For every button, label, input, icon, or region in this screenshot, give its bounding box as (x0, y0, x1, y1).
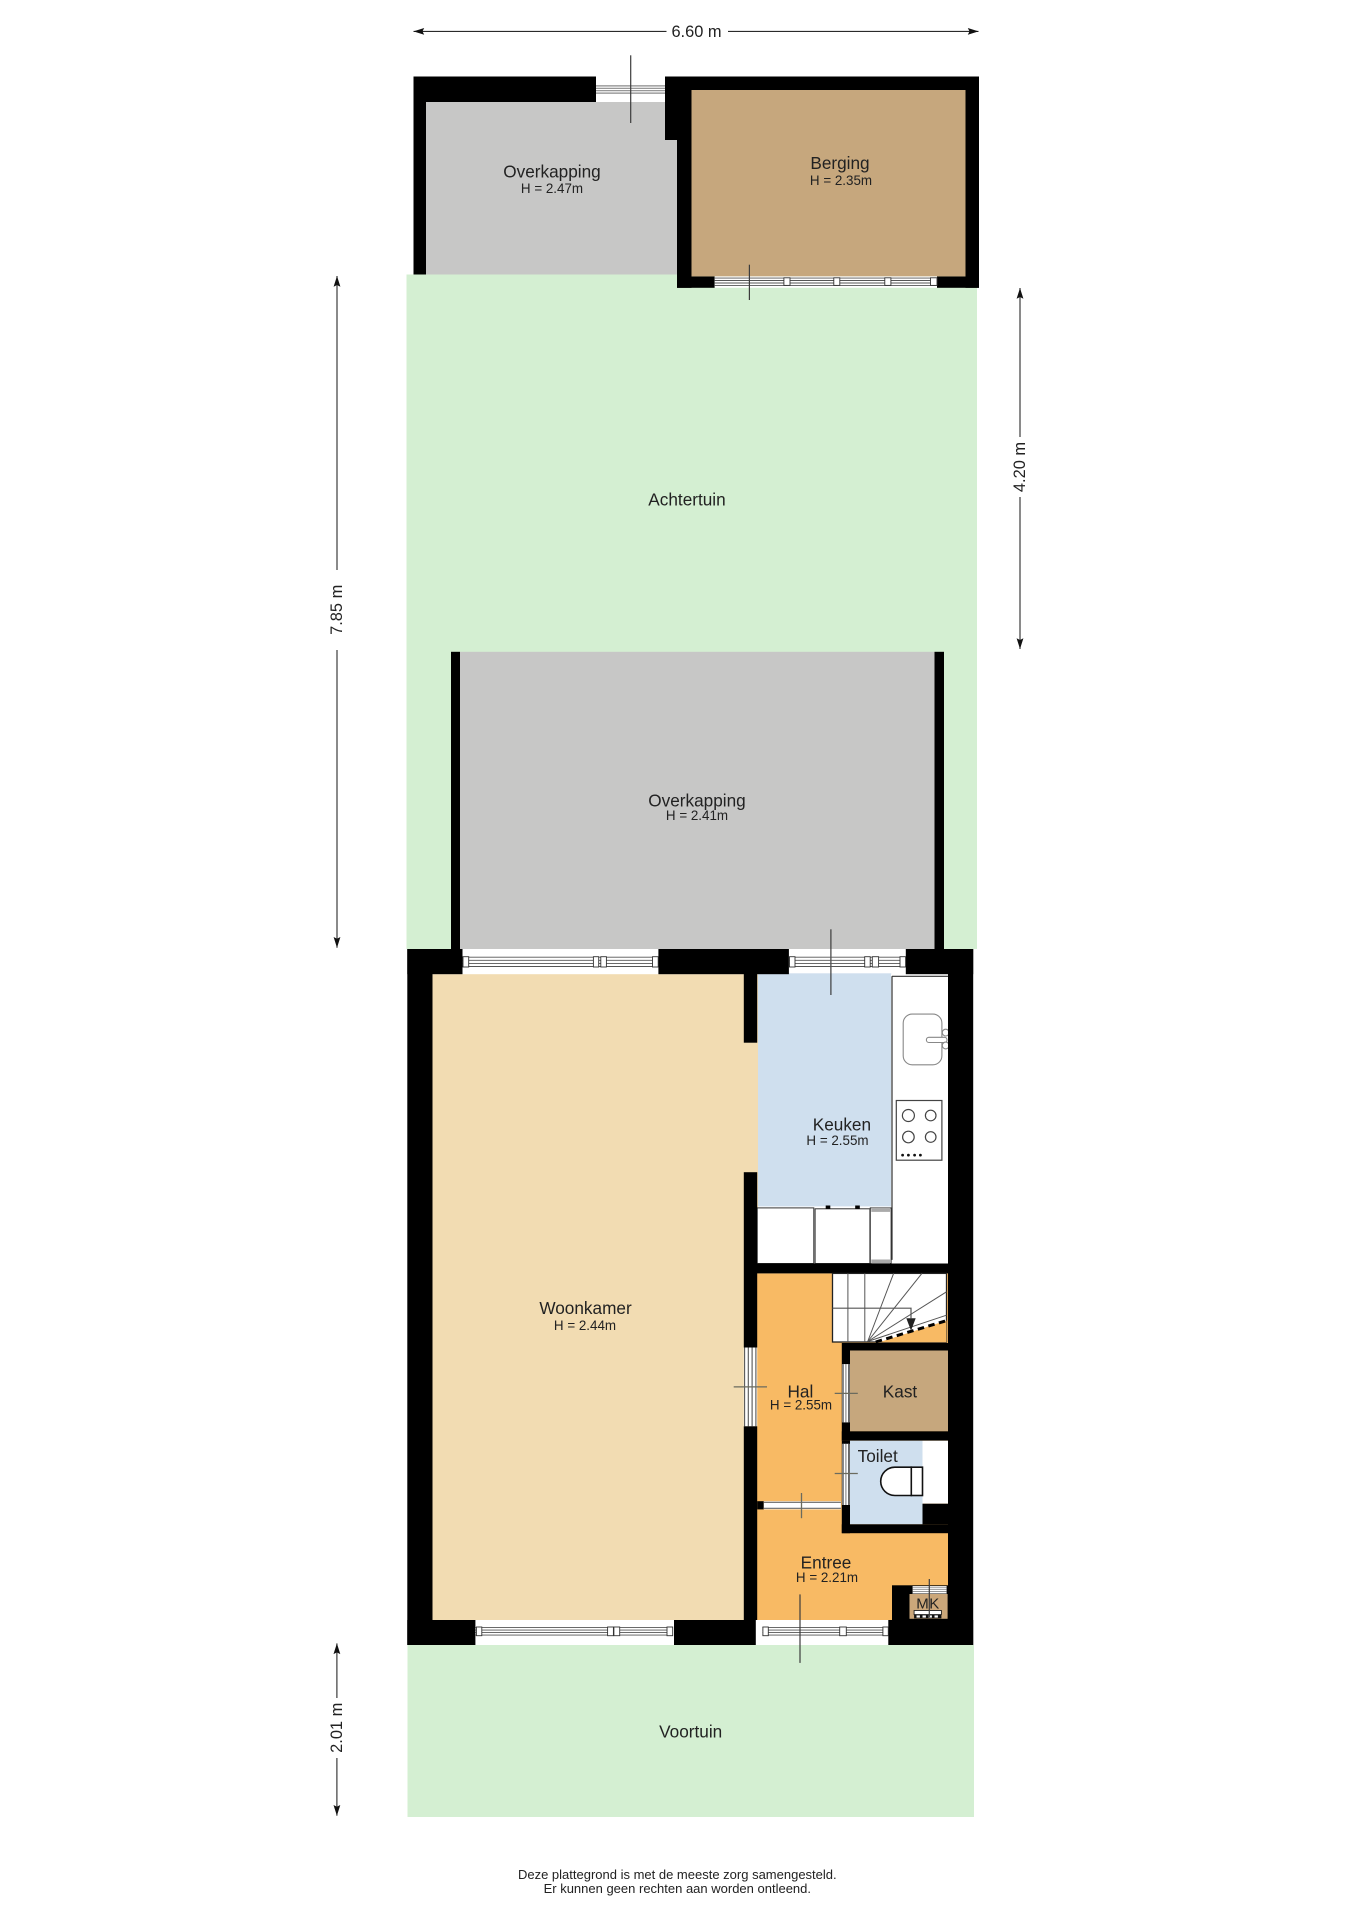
svg-text:Achtertuin: Achtertuin (648, 490, 725, 510)
svg-text:H = 2.55m: H = 2.55m (770, 1397, 832, 1412)
svg-text:Kast: Kast (883, 1381, 918, 1401)
svg-text:4.20 m: 4.20 m (1011, 442, 1029, 492)
svg-text:Woonkamer: Woonkamer (539, 1298, 632, 1318)
svg-text:Keuken: Keuken (813, 1115, 871, 1135)
svg-text:Overkapping: Overkapping (503, 162, 600, 182)
svg-text:H = 2.35m: H = 2.35m (810, 173, 872, 188)
svg-text:H = 2.47m: H = 2.47m (521, 181, 583, 196)
svg-text:7.85 m: 7.85 m (328, 585, 346, 635)
svg-text:Berging: Berging (810, 153, 869, 173)
svg-text:Voortuin: Voortuin (659, 1721, 722, 1741)
svg-text:Toilet: Toilet (858, 1446, 898, 1466)
svg-text:MK: MK (916, 1596, 940, 1613)
svg-text:2.01 m: 2.01 m (328, 1703, 346, 1753)
svg-text:H = 2.41m: H = 2.41m (666, 808, 728, 823)
svg-text:H = 2.55m: H = 2.55m (806, 1133, 868, 1148)
svg-text:H = 2.21m: H = 2.21m (796, 1570, 858, 1585)
svg-text:Er kunnen geen rechten aan wor: Er kunnen geen rechten aan worden ontlee… (544, 1881, 811, 1896)
svg-text:6.60 m: 6.60 m (671, 23, 721, 41)
svg-text:Deze plattegrond is met de mee: Deze plattegrond is met de meeste zorg s… (518, 1867, 837, 1882)
svg-text:H = 2.44m: H = 2.44m (554, 1318, 616, 1333)
